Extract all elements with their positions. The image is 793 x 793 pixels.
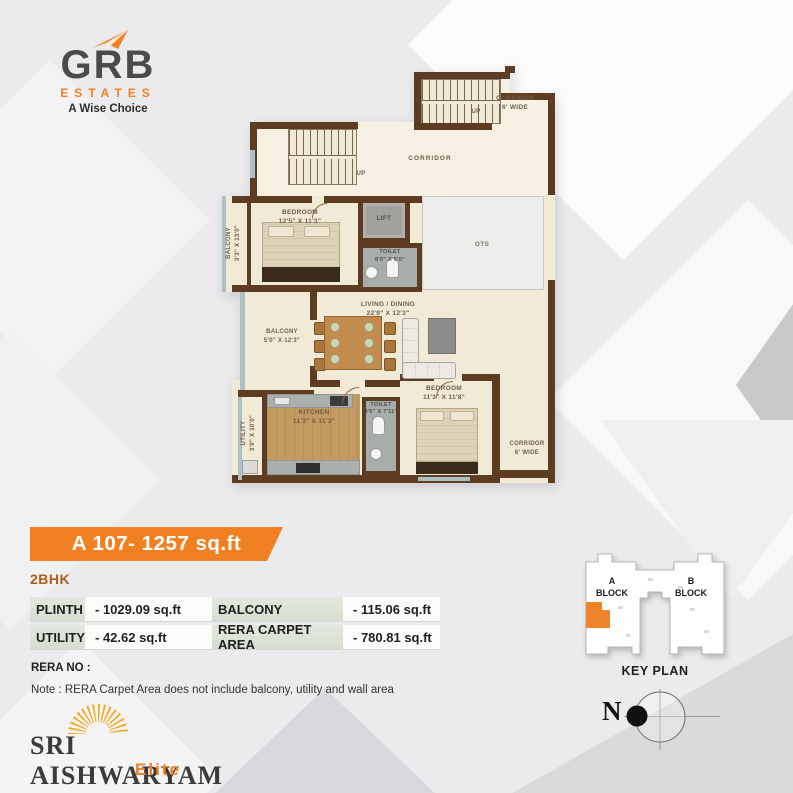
dining-chair bbox=[384, 358, 396, 371]
pillow bbox=[304, 226, 330, 237]
living-label: LIVING / DINING22'9" X 12'3" bbox=[336, 300, 440, 318]
block-b-letter: B bbox=[688, 576, 695, 586]
sofa bbox=[402, 362, 456, 379]
table-label: RERA CARPET AREA bbox=[212, 625, 343, 649]
table-label: UTILITY bbox=[30, 625, 85, 649]
rera-number-label: RERA NO : bbox=[31, 662, 91, 674]
balcony2-label: BALCONY5'0" X 12'3" bbox=[246, 328, 318, 346]
wall-segment bbox=[365, 380, 400, 387]
staircase-main bbox=[288, 129, 357, 185]
bed-bench bbox=[262, 267, 340, 282]
rera-note: Note : RERA Carpet Area does not include… bbox=[31, 684, 394, 696]
bedroom1-label: BEDROOM12'5" X 11'3" bbox=[256, 208, 344, 226]
wall-segment bbox=[414, 72, 421, 130]
plate bbox=[364, 322, 374, 332]
washbasin-icon bbox=[365, 266, 378, 279]
tv-unit bbox=[428, 318, 456, 354]
plate bbox=[364, 338, 374, 348]
pillow bbox=[450, 411, 474, 421]
window bbox=[250, 150, 255, 178]
key-plan-outline bbox=[586, 554, 724, 654]
bedroom2-label: BEDROOM11'3" X 11'8" bbox=[402, 384, 486, 402]
sink-icon bbox=[274, 397, 290, 405]
toilet1-label: TOILET8'0" X 5'0" bbox=[358, 248, 422, 264]
table-value: - 115.06 sq.ft bbox=[343, 597, 440, 621]
grb-wordmark: GRB bbox=[28, 44, 188, 86]
corridor-bottom-label: CORRIDOR6' WIDE bbox=[500, 440, 554, 458]
corridor-top-label: CORRIDOR6' WIDE bbox=[484, 94, 546, 112]
pillow bbox=[268, 226, 294, 237]
unit-type: 2BHK bbox=[30, 571, 70, 587]
balcony-railing bbox=[240, 292, 245, 390]
table-value: - 42.62 sq.ft bbox=[85, 625, 212, 649]
wall-segment bbox=[310, 380, 340, 387]
window bbox=[418, 477, 470, 481]
compass-icon bbox=[624, 688, 724, 754]
wall-segment bbox=[232, 196, 312, 203]
wall-segment bbox=[310, 292, 317, 320]
hob-icon bbox=[296, 463, 320, 473]
table-label: PLINTH bbox=[30, 597, 85, 621]
grb-tagline: A Wise Choice bbox=[28, 103, 188, 115]
washbasin-icon bbox=[370, 448, 382, 460]
up-label: UP bbox=[468, 108, 484, 117]
pillow bbox=[420, 411, 444, 421]
wall-segment bbox=[500, 470, 555, 478]
wall-segment bbox=[414, 123, 492, 130]
table-value: - 780.81 sq.ft bbox=[343, 625, 440, 649]
grb-estates-text: ESTATES bbox=[28, 86, 188, 100]
plate bbox=[330, 322, 340, 332]
balcony1-label: BALCONY3'3" X 13'0" bbox=[225, 203, 243, 283]
table-row: PLINTH - 1029.09 sq.ft BALCONY - 115.06 … bbox=[30, 597, 440, 621]
bg-diamond bbox=[0, 330, 160, 630]
wall-segment bbox=[247, 203, 251, 285]
key-plan: A BLOCK B BLOCK bbox=[578, 546, 732, 664]
plate bbox=[330, 354, 340, 364]
toilet2-label: TOILET4'6" X 7'11" bbox=[358, 402, 404, 416]
project-subtitle: Elite bbox=[108, 760, 208, 780]
wall-segment bbox=[414, 72, 510, 79]
floor-plan: CORRIDOR6' WIDE UP CORRIDOR UP BEDROOM12… bbox=[218, 66, 558, 484]
flyer-canvas: GRB ESTATES A Wise Choice bbox=[0, 0, 793, 793]
dining-chair bbox=[384, 322, 396, 335]
north-label: N bbox=[602, 696, 622, 727]
wall-segment bbox=[548, 93, 555, 195]
sunburst-icon bbox=[56, 702, 140, 734]
block-a-word: BLOCK bbox=[596, 588, 628, 598]
grb-logo: GRB ESTATES A Wise Choice bbox=[28, 24, 188, 115]
unit-banner: A 107- 1257 sq.ft bbox=[30, 527, 283, 561]
table-label: BALCONY bbox=[212, 597, 343, 621]
table-row: UTILITY - 42.62 sq.ft RERA CARPET AREA -… bbox=[30, 625, 440, 649]
wall-segment bbox=[232, 285, 360, 292]
ots-label: OTS bbox=[422, 240, 542, 249]
block-b-word: BLOCK bbox=[675, 588, 707, 598]
kitchen-label: KITCHEN11'3" X 11'3" bbox=[274, 408, 354, 426]
corridor-main-label: CORRIDOR bbox=[394, 154, 466, 163]
utility-label: UTILITY3'9" X 10'0" bbox=[240, 393, 258, 473]
toilet-wc-icon bbox=[372, 416, 385, 435]
wall-segment bbox=[492, 380, 500, 483]
paper-plane-icon bbox=[90, 26, 130, 50]
dining-chair bbox=[384, 340, 396, 353]
plate bbox=[364, 354, 374, 364]
key-plan-title: KEY PLAN bbox=[578, 664, 732, 678]
area-table: PLINTH - 1029.09 sq.ft BALCONY - 115.06 … bbox=[30, 597, 440, 653]
wall-segment bbox=[250, 122, 358, 129]
bed-bench bbox=[416, 462, 478, 474]
stair-landing bbox=[289, 155, 356, 159]
block-a-letter: A bbox=[609, 576, 616, 586]
lift-label: LIFT bbox=[358, 214, 410, 223]
table-value: - 1029.09 sq.ft bbox=[85, 597, 212, 621]
compass: N bbox=[598, 688, 728, 758]
plate bbox=[330, 338, 340, 348]
wall-segment bbox=[505, 66, 515, 73]
up-label: UP bbox=[352, 170, 370, 179]
